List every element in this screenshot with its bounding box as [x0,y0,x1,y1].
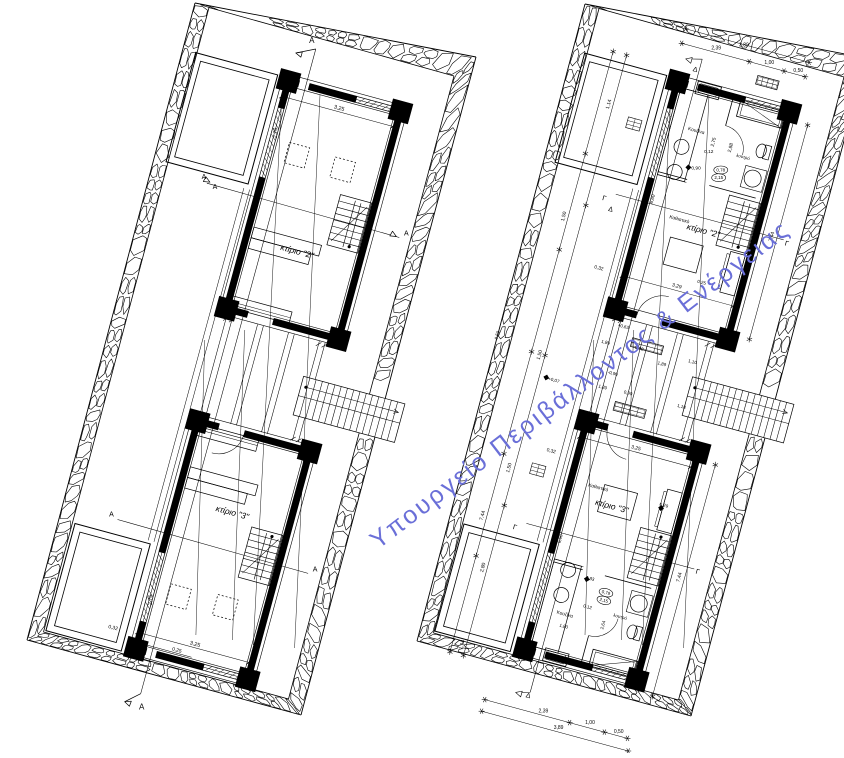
svg-text:A: A [202,174,207,181]
svg-text:0,90: 0,90 [691,166,701,172]
svg-text:0,50: 0,50 [793,68,803,74]
svg-text:1,00: 1,00 [764,60,774,66]
svg-text:2,76: 2,76 [273,127,280,138]
svg-text:A: A [139,703,145,712]
svg-text:A: A [309,36,315,45]
svg-text:2,39: 2,39 [539,708,549,714]
svg-text:A: A [404,231,409,238]
svg-text:2,39: 2,39 [711,46,721,52]
svg-text:0,12: 0,12 [704,149,714,155]
svg-text:1,00: 1,00 [585,720,595,726]
svg-text:3,89: 3,89 [739,43,749,49]
svg-text:3,89: 3,89 [554,725,564,731]
svg-text:2,76: 2,76 [148,594,155,605]
svg-text:A: A [109,512,114,519]
svg-text:0,78: 0,78 [716,168,725,173]
svg-text:A: A [313,566,318,573]
svg-text:A: A [213,184,218,191]
svg-text:0,50: 0,50 [614,729,624,735]
svg-text:2,15: 2,15 [714,175,723,180]
